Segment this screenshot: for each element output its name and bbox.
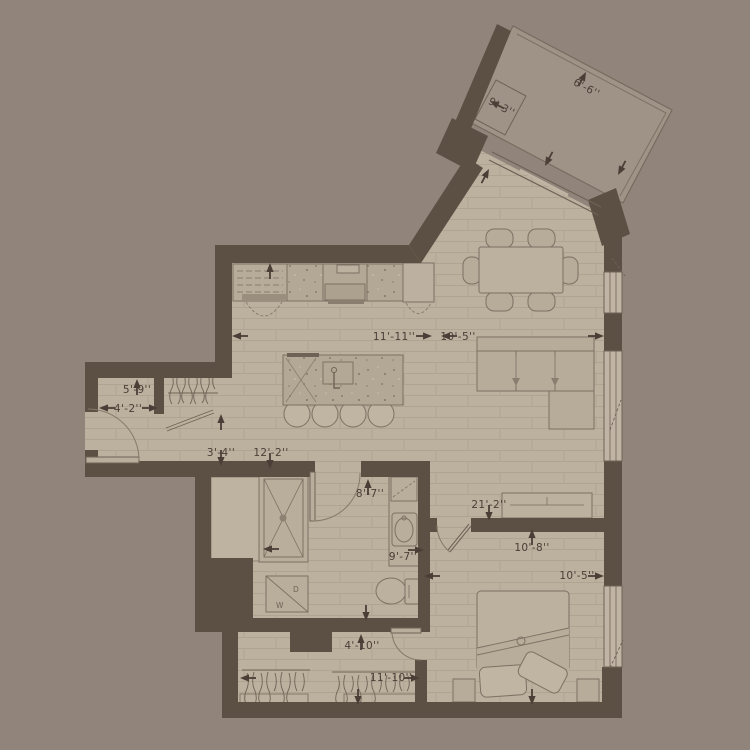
wall-bottom xyxy=(222,702,622,718)
washer-label: W xyxy=(276,601,284,610)
dining-chair xyxy=(486,292,513,311)
toilet xyxy=(376,578,419,604)
dining-chair xyxy=(528,229,555,248)
dimension-label-living-length: 21'-2'' xyxy=(471,499,506,511)
dimension-label-entry-depth: 5'-9'' xyxy=(123,384,151,396)
floor-plan: W D xyxy=(0,0,750,750)
dimension-label-bath-height: 8'-7'' xyxy=(356,488,384,500)
console-table xyxy=(502,493,592,518)
dimension-label-bedroom-width: 10'-5'' xyxy=(559,570,594,582)
dimension-label-laundry-nook: 4'-10'' xyxy=(344,640,379,652)
dimension-label-bedroom-depth: 10'-8'' xyxy=(514,542,549,554)
dining-table xyxy=(479,247,563,293)
linen-cabinet xyxy=(211,477,259,561)
dining-chair xyxy=(486,229,513,248)
dimension-label-entry-width: 4'-2'' xyxy=(114,403,142,415)
dimension-label-kitchen: 11'-11'' xyxy=(373,331,415,343)
dining-chair xyxy=(463,257,481,284)
wall-bath-bottom xyxy=(195,618,418,632)
dimension-label-living-width: 10'-5'' xyxy=(440,331,475,343)
bed xyxy=(477,591,569,698)
wall-bath-top xyxy=(195,461,315,477)
nightstand xyxy=(453,679,475,702)
wall-bath-right xyxy=(418,461,430,632)
wall-corridor-jog xyxy=(290,632,332,652)
wall-bedroom-top xyxy=(471,518,604,532)
wall-right xyxy=(604,313,622,351)
kitchen-island xyxy=(283,353,403,427)
wall-right xyxy=(604,461,622,586)
wall-kitchen-top xyxy=(215,245,421,263)
dining-chair xyxy=(528,292,555,311)
dimension-label-corridor: 11'-10'' xyxy=(370,672,412,684)
dimension-label-bath-length: 12'-2'' xyxy=(253,447,288,459)
dimension-label-hall: 3'-4'' xyxy=(207,447,235,459)
window-living xyxy=(604,351,622,461)
wall-kitchen-left xyxy=(215,245,232,362)
dimension-label-bath-width: 9'-7'' xyxy=(389,551,417,563)
window-bedroom xyxy=(604,586,622,667)
nightstand xyxy=(577,679,599,702)
island-sink xyxy=(323,362,353,384)
window-dining xyxy=(604,272,622,313)
wall-bath-left xyxy=(195,461,211,632)
wall-right xyxy=(604,218,622,272)
washer-dryer: W D xyxy=(266,576,308,612)
sofa-chaise xyxy=(549,391,594,429)
wall-bedroom-left xyxy=(415,660,427,702)
dryer-label: D xyxy=(293,585,299,594)
kitchen-counter xyxy=(287,264,323,301)
refrigerator xyxy=(403,263,434,302)
wall-corridor-left xyxy=(222,630,238,718)
kitchen-counter-2 xyxy=(367,264,403,301)
